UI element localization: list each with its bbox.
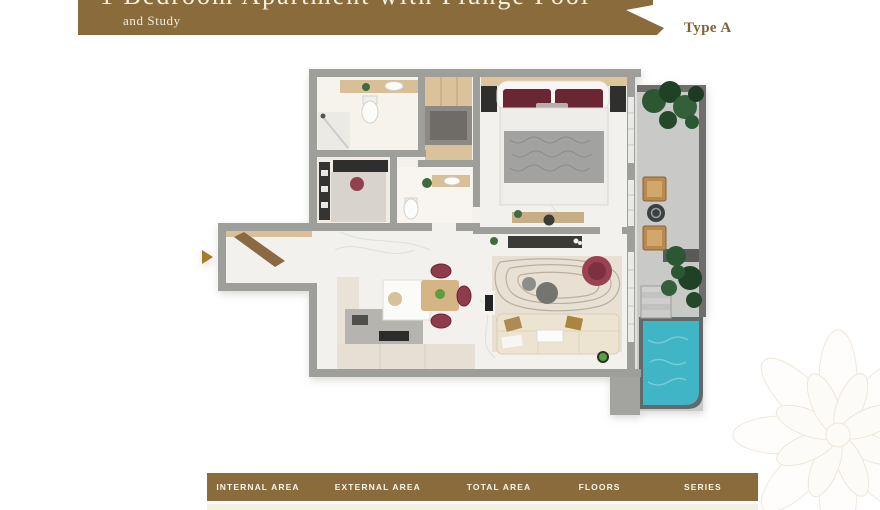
entry-arrow	[202, 250, 213, 264]
windows	[628, 97, 634, 342]
column-header-internal-area: INTERNAL AREA	[207, 482, 309, 492]
brochure-page: 1 Bedroom Apartment with Plunge Pool and…	[0, 0, 880, 510]
column-header-floors: FLOORS	[551, 482, 647, 492]
areas-table: INTERNAL AREA EXTERNAL AREA TOTAL AREA F…	[207, 473, 758, 510]
kitchen-sink	[352, 315, 368, 325]
column-header-total-area: TOTAL AREA	[447, 482, 552, 492]
cooktop	[379, 331, 409, 341]
study	[317, 157, 390, 225]
plant	[514, 210, 522, 218]
column-header-external-area: EXTERNAL AREA	[309, 482, 447, 492]
desk	[333, 160, 388, 172]
sink	[444, 177, 460, 185]
wardrobe	[425, 77, 472, 162]
table-data-row	[207, 504, 758, 510]
bedroom	[481, 77, 627, 226]
toilet	[362, 101, 378, 123]
terrace-table	[647, 204, 665, 222]
terrace	[637, 81, 706, 411]
nightstand	[481, 86, 497, 112]
coffee-table	[522, 277, 536, 291]
stool	[544, 215, 555, 226]
bathroom	[317, 77, 418, 152]
nightstand	[610, 86, 626, 112]
column-header-series: SERIES	[648, 482, 758, 492]
bathroom-2	[397, 167, 472, 223]
sink	[385, 82, 403, 91]
terrace-chair	[643, 177, 666, 201]
terrace-chair	[643, 226, 666, 250]
tray	[537, 330, 563, 342]
vacuum-robot	[598, 352, 608, 362]
dining-chair	[431, 314, 451, 328]
living-room	[483, 256, 622, 362]
table-header-row: INTERNAL AREA EXTERNAL AREA TOTAL AREA F…	[207, 473, 758, 501]
plant	[362, 83, 370, 91]
desk-chair	[350, 177, 364, 191]
base-cabinets	[337, 344, 475, 369]
toilet	[404, 199, 418, 219]
plant	[490, 237, 498, 245]
dining-chair	[457, 286, 471, 306]
plant	[435, 289, 445, 299]
floor-plan	[0, 0, 880, 510]
plunge-pool	[639, 317, 703, 409]
vanity	[340, 80, 418, 93]
plant	[422, 178, 432, 188]
coffee-table	[536, 282, 558, 304]
dining-chair	[431, 264, 451, 278]
